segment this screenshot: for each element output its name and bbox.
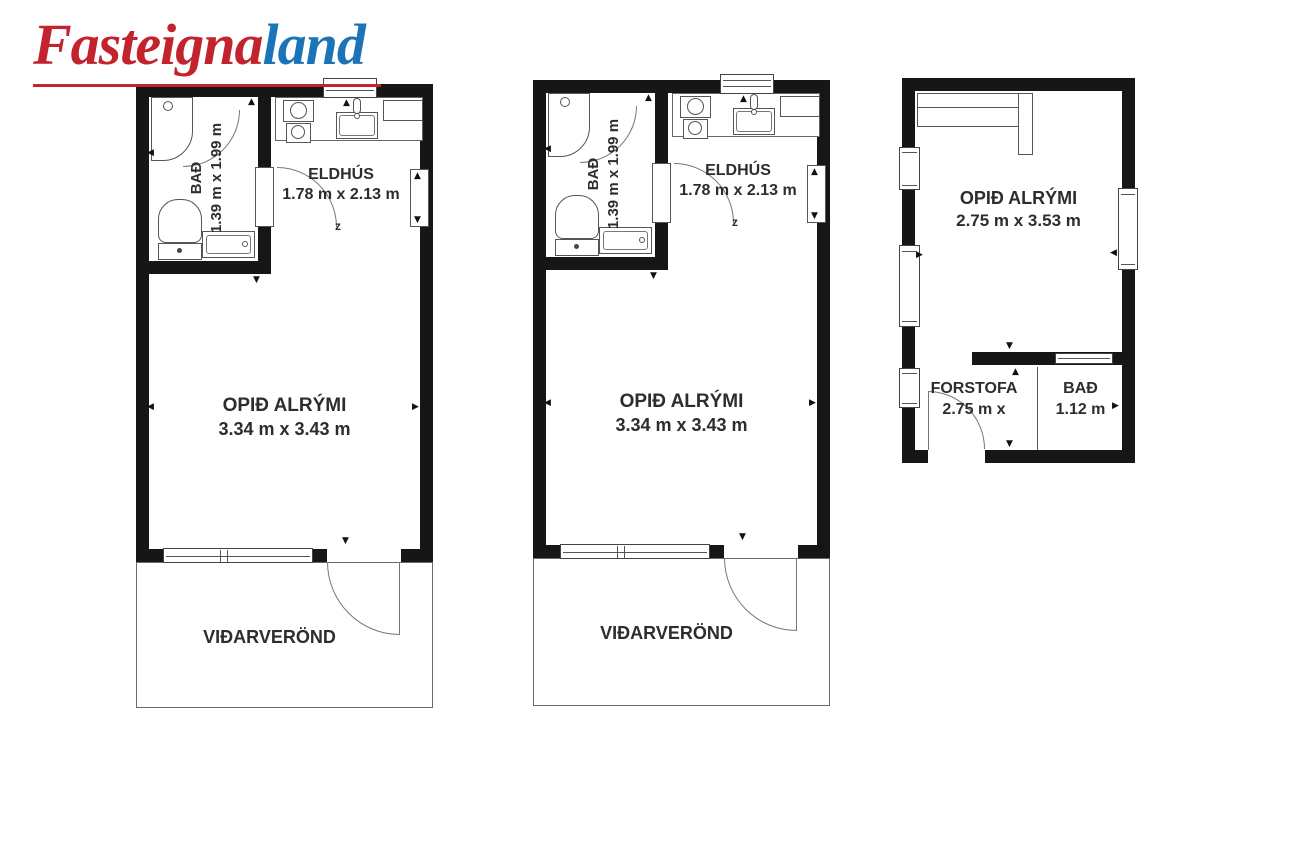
dimension-arrow-up: ▲ [248,98,255,107]
closet-partition [1018,93,1033,155]
dimension-arrow-up: ▲ [1012,368,1019,377]
deck-door-swing-arc [724,558,797,631]
deck-door-leaf [796,558,797,631]
bottom-window [560,544,710,559]
deck-label: VIÐARVERÖND [534,623,799,644]
deck-door-swing-arc [327,562,400,635]
bath-dims: 1.12 m [1039,399,1122,420]
closet-counter [917,93,1021,127]
dimension-arrow-up: ▲ [645,94,652,103]
dimension-arrow-down: ▼ [739,533,746,542]
bathroom-wall-horizontal [546,257,655,270]
dimension-arrow-down: ▼ [253,276,260,285]
dimension-arrow-down: ▼ [811,212,818,221]
kitchen-dims: 1.78 m x 2.13 m [256,185,426,205]
bathroom-label: BAÐ [187,103,207,253]
floorplan-unit-2: ▲ ▲ ▼ BAÐ 1.39 m x 1.99 m ELDHÚS 1.78 m … [533,80,830,558]
deck-unit-2: VIÐARVERÖND [533,558,830,706]
bathroom-label-group: BAÐ 1.39 m x 1.99 m [187,103,227,253]
faucet-icon [353,98,361,114]
dimension-arrow-down: ▼ [650,272,657,281]
main-room-dims: 3.34 m x 3.43 m [546,414,817,436]
floor-drain-symbol: z [335,219,341,233]
kitchen-cabinet [780,96,820,117]
main-room-label-group: OPIÐ ALRÝMI 2.75 m x 3.53 m [915,187,1122,232]
bath-label: BAÐ [1039,378,1122,399]
floor-drain-symbol: z [732,215,738,229]
kitchen-dims: 1.78 m x 2.13 m [653,181,823,201]
dimension-arrow-up: ▲ [343,99,350,108]
burner-circle-icon [687,98,704,115]
kitchen-label: ELDHÚS [256,165,426,185]
dimension-arrow-up: ▲ [414,172,421,181]
deck-door-leaf [399,562,400,635]
bottom-window [163,548,313,563]
faucet-knob-icon [751,109,757,115]
dimension-arrow-up: ▲ [740,95,747,104]
kitchen-label: ELDHÚS [653,161,823,181]
kitchen-cabinet [383,100,423,121]
right-window [1118,188,1138,270]
dimension-arrow-up: ▲ [811,168,818,177]
main-room-label: OPIÐ ALRÝMI [915,187,1122,210]
main-room-dims: 3.34 m x 3.43 m [149,418,420,440]
main-room-label-group: OPIÐ ALRÝMI 3.34 m x 3.43 m [149,394,420,440]
floorplan-sheet: Fasteignaland ▲ ▲ [0,0,1300,867]
hall-dims: 2.75 m x [905,399,1043,420]
interior-window [1055,353,1113,364]
sink-faucet-icon [639,237,645,243]
dimension-arrow-left: ◀ [544,399,551,408]
dimension-arrow-down: ▼ [342,537,349,546]
logo-text-red: Fasteigna [33,12,263,77]
deck-label: VIÐARVERÖND [137,627,402,648]
main-room-label: OPIÐ ALRÝMI [149,394,420,418]
entry-door-opening [928,450,985,463]
left-window-3 [899,368,920,408]
top-window [720,74,774,94]
bathroom-wall-horizontal [149,261,258,274]
dimension-arrow-down: ▼ [414,216,421,225]
bathroom-door-frame [255,167,274,227]
company-logo: Fasteignaland [33,14,365,76]
left-window-1 [899,147,920,190]
bath-label-group: BAÐ 1.12 m [1039,378,1122,420]
main-room-dims: 2.75 m x 3.53 m [915,210,1122,232]
shower-head-icon [163,101,173,111]
deck-door-opening [724,545,798,558]
dimension-arrow-left: ◀ [1110,249,1117,258]
main-room-label: OPIÐ ALRÝMI [546,390,817,414]
hall-label-group: FORSTOFA 2.75 m x [905,378,1043,420]
top-window [323,78,377,98]
dimension-arrow-down: ▼ [1006,440,1013,449]
deck-door-opening [327,549,401,562]
hall-label: FORSTOFA [905,378,1043,399]
dimension-arrow-right: ▶ [1112,402,1119,411]
dimension-arrow-right: ▶ [412,403,419,412]
logo-underline [33,84,381,87]
bathroom-door-frame [652,163,671,223]
shower-head-icon [560,97,570,107]
faucet-icon [750,94,758,110]
dimension-arrow-left: ◀ [147,149,154,158]
deck-unit-1: VIÐARVERÖND [136,562,433,708]
kitchen-label-group: ELDHÚS 1.78 m x 2.13 m [256,165,426,205]
bathroom-dims: 1.39 m x 1.99 m [207,103,227,253]
toilet-flush-icon [177,248,182,253]
dimension-arrow-right: ▶ [916,251,923,260]
toilet-flush-icon [574,244,579,249]
dimension-arrow-right: ▶ [809,399,816,408]
dimension-arrow-down: ▼ [1006,342,1013,351]
floorplan-unit-1: ▲ ▲ ▼ BAÐ 1.39 m x 1.99 m ELDHÚS 1.78 m … [136,84,433,562]
burner-circle-icon [290,102,307,119]
kitchen-label-group: ELDHÚS 1.78 m x 2.13 m [653,161,823,201]
burner-circle-icon [291,125,305,139]
faucet-knob-icon [354,113,360,119]
floorplan-unit-3: OPIÐ ALRÝMI 2.75 m x 3.53 m FORSTOFA 2.7… [902,78,1135,463]
bathroom-label: BAÐ [584,99,604,249]
bathroom-label-group: BAÐ 1.39 m x 1.99 m [584,99,624,249]
main-room-label-group: OPIÐ ALRÝMI 3.34 m x 3.43 m [546,390,817,436]
dimension-arrow-left: ◀ [544,145,551,154]
logo-text-blue: land [263,12,365,77]
burner-circle-icon [688,121,702,135]
bathroom-dims: 1.39 m x 1.99 m [604,99,624,249]
sink-faucet-icon [242,241,248,247]
dimension-arrow-left: ◀ [147,403,154,412]
